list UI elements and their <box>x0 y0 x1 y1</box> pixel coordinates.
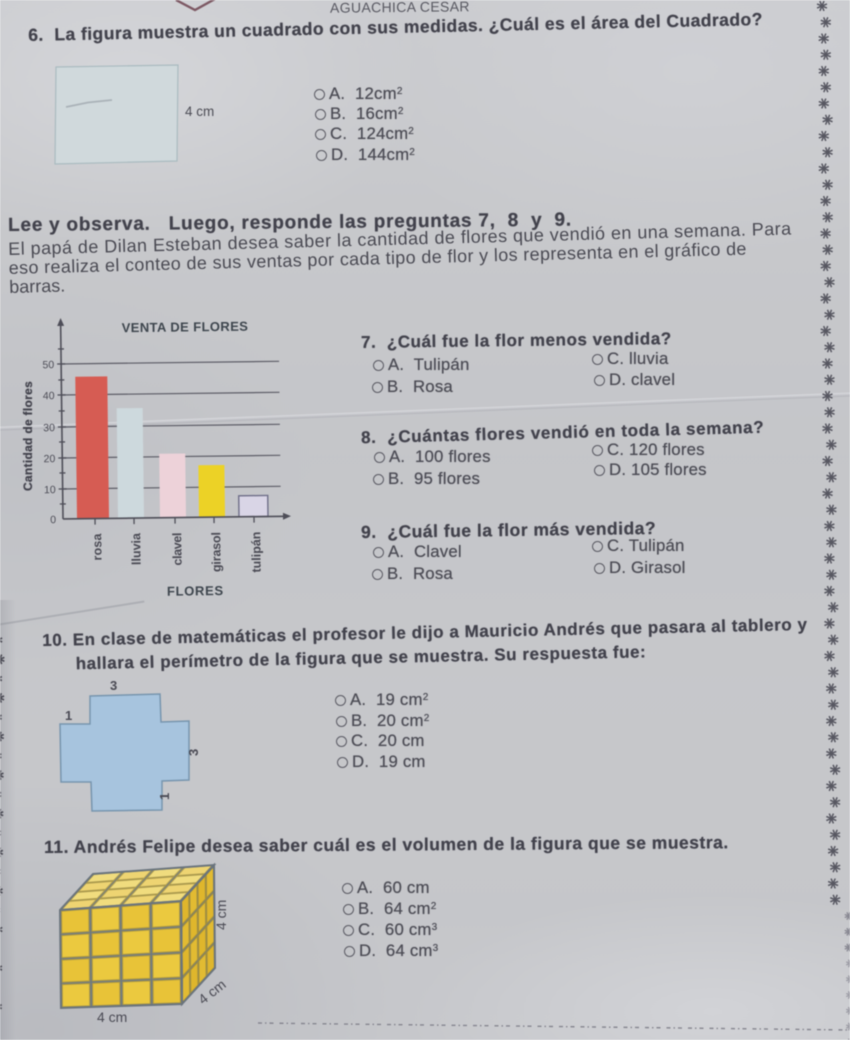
svg-text:1: 1 <box>157 793 172 800</box>
svg-text:rosa: rosa <box>90 532 104 560</box>
svg-text:3: 3 <box>186 749 201 756</box>
svg-text:40: 40 <box>43 390 55 402</box>
svg-text:3: 3 <box>110 678 117 693</box>
svg-text:20: 20 <box>44 453 56 465</box>
svg-text:VENTA DE FLORES: VENTA DE FLORES <box>122 319 249 336</box>
svg-text:4 cm: 4 cm <box>97 1009 127 1025</box>
svg-text:clavel: clavel <box>170 532 184 565</box>
svg-text:4 cm: 4 cm <box>213 900 229 930</box>
svg-text:0: 0 <box>50 514 56 526</box>
svg-text:1: 1 <box>65 708 72 723</box>
svg-text:lluvia: lluvia <box>129 532 143 565</box>
svg-text:tulipán: tulipán <box>249 532 263 573</box>
svg-text:10: 10 <box>44 484 56 496</box>
svg-text:girasol: girasol <box>209 532 223 572</box>
svg-text:FLORES: FLORES <box>167 583 224 599</box>
svg-text:30: 30 <box>43 422 55 434</box>
svg-text:50: 50 <box>42 359 54 371</box>
